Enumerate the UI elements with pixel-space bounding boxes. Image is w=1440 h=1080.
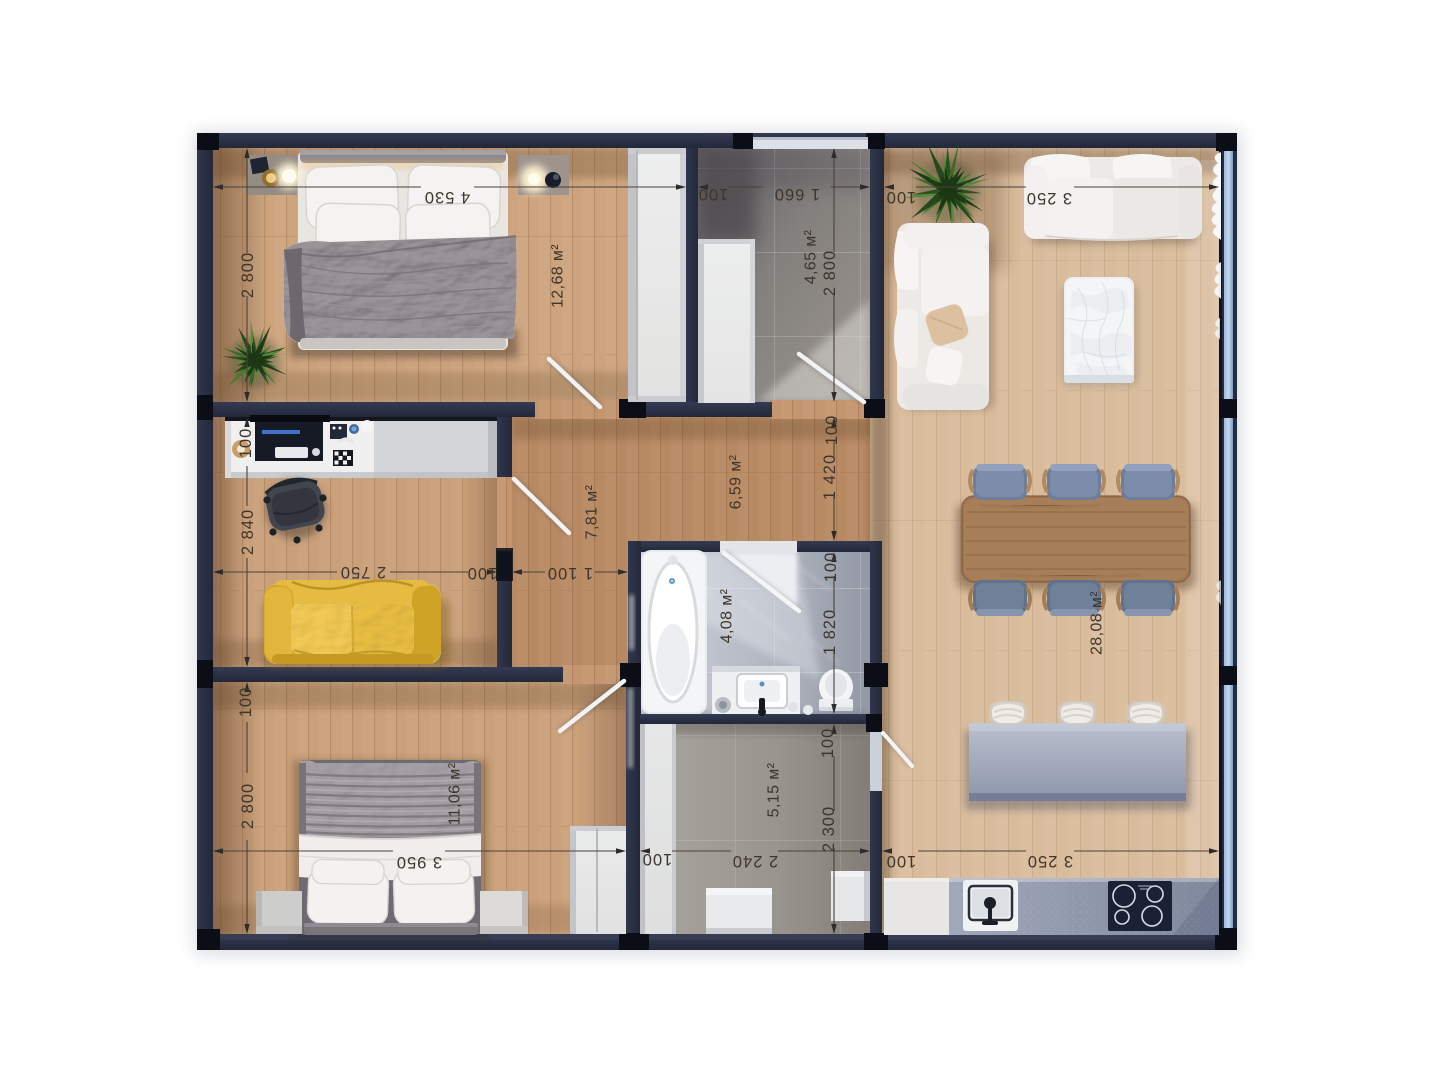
- svg-text:100: 100: [886, 188, 917, 206]
- svg-text:100: 100: [467, 564, 498, 582]
- svg-text:1 420: 1 420: [821, 454, 839, 500]
- svg-text:12,68 м²: 12,68 м²: [550, 244, 567, 308]
- svg-text:2 840: 2 840: [239, 509, 257, 555]
- svg-text:100: 100: [237, 428, 255, 459]
- svg-text:5,15 м²: 5,15 м²: [766, 762, 783, 817]
- svg-text:1 100: 1 100: [547, 564, 593, 582]
- svg-text:100: 100: [886, 852, 917, 870]
- svg-text:2 800: 2 800: [821, 250, 839, 296]
- svg-text:11,06 м²: 11,06 м²: [447, 762, 464, 825]
- svg-text:7,81 м²: 7,81 м²: [584, 484, 601, 539]
- svg-text:2 750: 2 750: [340, 563, 386, 581]
- svg-text:2 240: 2 240: [732, 852, 778, 870]
- svg-text:100: 100: [819, 728, 837, 759]
- svg-text:6,59 м²: 6,59 м²: [728, 454, 745, 509]
- svg-text:28,08 м²: 28,08 м²: [1089, 591, 1106, 655]
- svg-text:3 250: 3 250: [1026, 189, 1072, 207]
- svg-text:100: 100: [822, 552, 840, 583]
- svg-text:1 820: 1 820: [821, 609, 839, 655]
- svg-text:1 660: 1 660: [774, 185, 820, 203]
- svg-text:100: 100: [823, 415, 841, 446]
- svg-text:100: 100: [642, 850, 673, 868]
- svg-text:3 250: 3 250: [1027, 852, 1073, 870]
- svg-text:2 800: 2 800: [239, 783, 257, 829]
- svg-text:4 530: 4 530: [424, 188, 470, 206]
- svg-text:2 800: 2 800: [239, 252, 257, 298]
- svg-text:2 300: 2 300: [820, 806, 838, 852]
- svg-text:4,08 м²: 4,08 м²: [719, 588, 736, 643]
- svg-text:100: 100: [698, 185, 729, 203]
- svg-text:4,65 м²: 4,65 м²: [803, 229, 820, 284]
- svg-text:3 950: 3 950: [396, 853, 442, 871]
- svg-text:100: 100: [237, 687, 255, 718]
